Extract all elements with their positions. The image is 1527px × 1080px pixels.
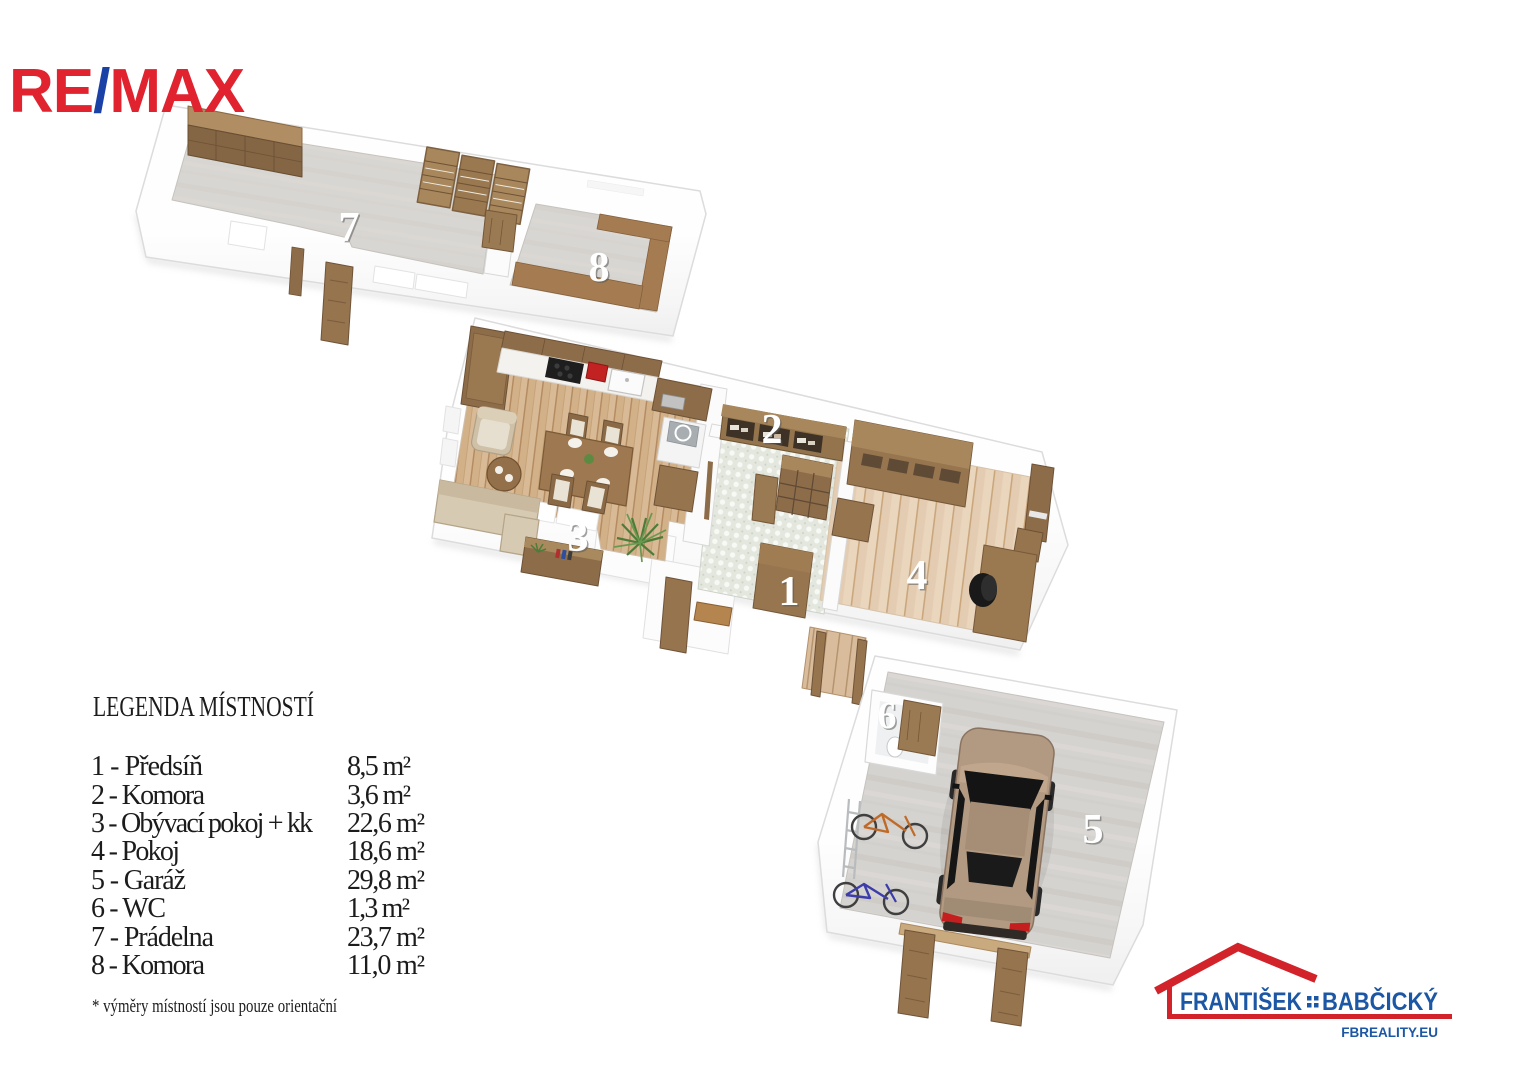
svg-text:4 - Pokoj: 4 - Pokoj [91, 836, 180, 867]
svg-text:8 - Komora: 8 - Komora [91, 950, 206, 981]
svg-text:5: 5 [1083, 807, 1104, 853]
svg-text:11,0 m²: 11,0 m² [347, 950, 425, 981]
svg-text:FBREALITY.EU: FBREALITY.EU [1341, 1025, 1438, 1040]
svg-text:18,6 m²: 18,6 m² [347, 836, 425, 867]
svg-text:7: 7 [339, 205, 360, 251]
svg-text:1,3 m²: 1,3 m² [347, 893, 410, 924]
svg-text:8,5 m²: 8,5 m² [347, 751, 411, 782]
svg-text:5 - Garáž: 5 - Garáž [91, 865, 186, 896]
svg-text:4: 4 [907, 553, 928, 599]
svg-text:8: 8 [589, 245, 610, 291]
svg-text:29,8 m²: 29,8 m² [347, 865, 425, 896]
svg-text:FRANTIŠEK: FRANTIŠEK [1180, 986, 1302, 1016]
svg-text:6: 6 [878, 695, 897, 737]
svg-text:6 - WC: 6 - WC [91, 893, 166, 924]
svg-text:7 - Prádelna: 7 - Prádelna [91, 922, 215, 953]
svg-text:* výměry místností jsou pouze: * výměry místností jsou pouze orientační [92, 997, 337, 1017]
svg-text:1 - Předsíň: 1 - Předsíň [91, 751, 203, 782]
svg-text:3,6 m²: 3,6 m² [347, 780, 411, 811]
svg-text:3: 3 [568, 515, 589, 561]
svg-text:2: 2 [762, 407, 783, 453]
svg-text:22,6 m²: 22,6 m² [347, 808, 425, 839]
svg-text:LEGENDA MÍSTNOSTÍ: LEGENDA MÍSTNOSTÍ [93, 692, 314, 723]
svg-text:3 - Obývací pokoj + kk: 3 - Obývací pokoj + kk [91, 808, 313, 839]
svg-text:RE/MAX: RE/MAX [9, 57, 245, 126]
svg-text:2 - Komora: 2 - Komora [91, 780, 206, 811]
svg-text:BABČICKÝ: BABČICKÝ [1322, 986, 1438, 1016]
svg-text:1: 1 [779, 569, 800, 615]
svg-text:23,7 m²: 23,7 m² [347, 922, 425, 953]
